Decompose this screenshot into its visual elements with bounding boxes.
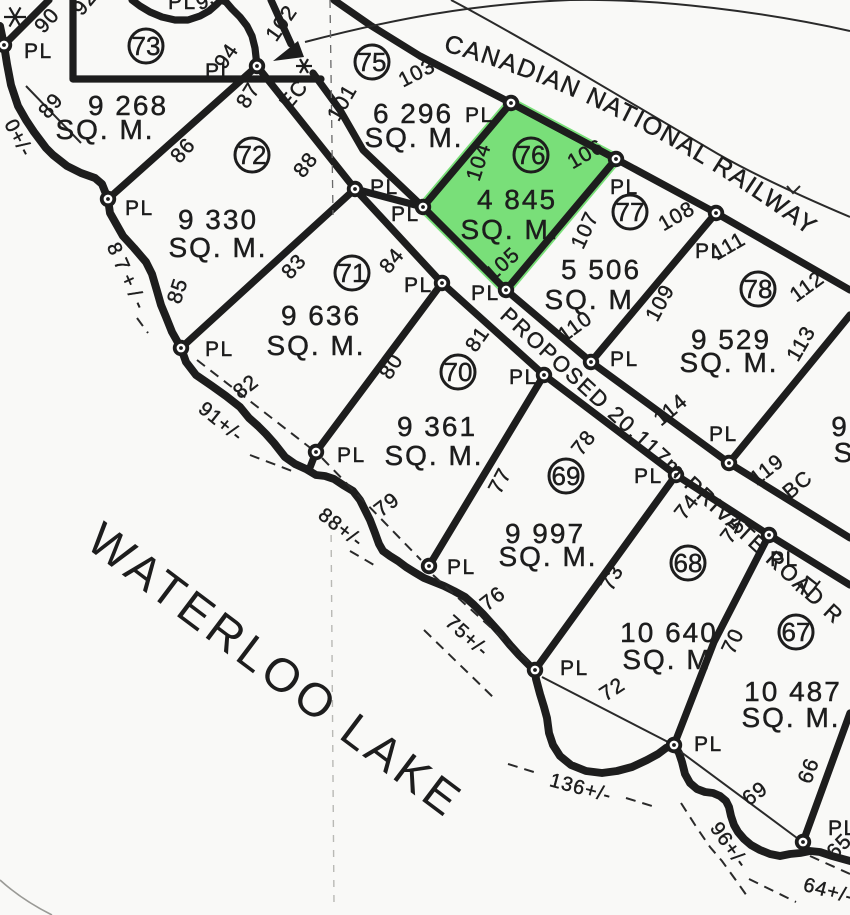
- svg-text:PL: PL: [168, 0, 197, 14]
- svg-text:PL: PL: [509, 366, 538, 389]
- svg-text:78: 78: [744, 274, 773, 304]
- svg-text:5 506: 5 506: [561, 254, 641, 285]
- svg-text:SQ. M.: SQ. M.: [384, 440, 483, 471]
- svg-text:PL: PL: [370, 176, 399, 199]
- svg-text:PL: PL: [24, 40, 53, 63]
- svg-text:PL: PL: [465, 104, 494, 127]
- svg-text:PL: PL: [404, 274, 433, 297]
- svg-text:PL: PL: [694, 733, 723, 756]
- svg-text:SQ. M.: SQ. M.: [168, 232, 267, 263]
- svg-text:PL: PL: [447, 556, 476, 579]
- svg-text:SQ. M.: SQ. M.: [55, 114, 154, 145]
- svg-text:73: 73: [132, 31, 161, 61]
- svg-text:SQ. M.: SQ. M.: [679, 347, 778, 378]
- svg-text:67: 67: [782, 617, 811, 647]
- svg-text:SQ. M.: SQ. M.: [498, 541, 597, 572]
- svg-text:PL: PL: [125, 197, 154, 220]
- svg-text:SQ. M: SQ. M: [622, 644, 711, 675]
- svg-text:69: 69: [552, 461, 581, 491]
- svg-text:SQ. M.: SQ. M.: [544, 284, 643, 315]
- svg-text:9 330: 9 330: [178, 204, 258, 235]
- svg-text:PL: PL: [337, 444, 366, 467]
- svg-text:SQ. M.: SQ. M.: [741, 702, 840, 733]
- svg-text:4 845: 4 845: [477, 184, 557, 215]
- svg-text:PL: PL: [610, 348, 639, 371]
- svg-text:9 361: 9 361: [397, 411, 477, 442]
- svg-text:SQ. M.: SQ. M.: [460, 214, 559, 245]
- svg-text:77: 77: [616, 197, 645, 227]
- svg-text:SQ. M.: SQ. M.: [266, 330, 365, 361]
- svg-text:PL: PL: [391, 203, 420, 226]
- svg-text:PL: PL: [709, 423, 738, 446]
- svg-text:70: 70: [444, 357, 473, 387]
- svg-text:SQ. M.: SQ. M.: [364, 122, 463, 153]
- svg-text:71: 71: [338, 258, 367, 288]
- svg-text:9 636: 9 636: [281, 300, 361, 331]
- svg-text:76: 76: [517, 140, 546, 170]
- svg-text:S: S: [834, 437, 850, 468]
- svg-text:72: 72: [238, 140, 267, 170]
- svg-text:68: 68: [674, 548, 703, 578]
- svg-text:PL: PL: [205, 338, 234, 361]
- svg-text:75: 75: [358, 47, 387, 77]
- svg-text:PL: PL: [560, 657, 589, 680]
